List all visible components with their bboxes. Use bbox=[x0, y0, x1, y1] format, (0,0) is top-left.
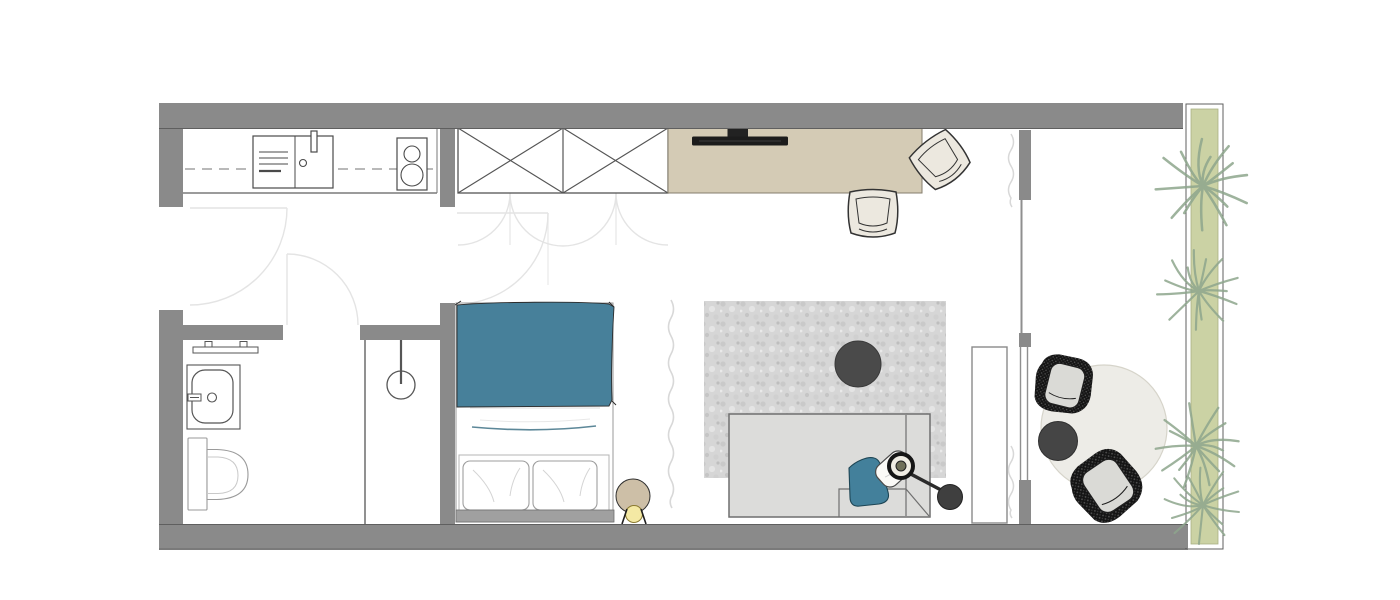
coffee-table bbox=[835, 341, 881, 387]
wall-partition-top bbox=[1019, 130, 1031, 200]
console bbox=[972, 347, 1007, 523]
wall-partition-bottom bbox=[1019, 480, 1031, 525]
bed bbox=[455, 301, 616, 522]
wall-top bbox=[159, 103, 1183, 128]
bedroom-door-swing bbox=[457, 213, 548, 304]
bathroom bbox=[187, 340, 415, 525]
desk-chair-front bbox=[848, 190, 898, 238]
shower-head bbox=[387, 340, 415, 399]
balcony-lounge bbox=[1028, 349, 1167, 532]
toilet bbox=[188, 438, 248, 510]
kitchen bbox=[183, 128, 437, 193]
wall-bedroom-lower bbox=[440, 303, 455, 525]
bathroom-shelf bbox=[193, 342, 258, 354]
floor-plan bbox=[0, 0, 1400, 600]
side-table bbox=[1039, 422, 1078, 461]
wall-left-upper bbox=[159, 103, 183, 207]
wall-left-lower bbox=[159, 310, 183, 548]
bathroom-door-swing bbox=[287, 254, 358, 325]
wardrobe bbox=[458, 128, 668, 193]
wall-bottom bbox=[159, 525, 1188, 548]
faucet bbox=[311, 131, 317, 152]
wardrobe-door-swings bbox=[458, 193, 668, 246]
entry-door-swing bbox=[190, 208, 287, 305]
wall-partition-mid bbox=[1019, 333, 1031, 347]
wall-bedroom-upper bbox=[440, 128, 455, 207]
bathroom-sink bbox=[187, 365, 240, 429]
kitchen-sink bbox=[253, 131, 333, 188]
headboard bbox=[456, 510, 614, 522]
partition-curtain-top bbox=[1009, 134, 1014, 207]
cooktop bbox=[397, 138, 427, 190]
blanket bbox=[457, 302, 614, 407]
partition-curtain-bottom bbox=[1009, 446, 1014, 518]
bed-curtain bbox=[669, 300, 674, 508]
wall-bath-divider-left bbox=[183, 325, 283, 340]
living-area bbox=[704, 301, 1007, 523]
desk bbox=[668, 128, 922, 193]
bedside-lamp bbox=[616, 479, 650, 524]
